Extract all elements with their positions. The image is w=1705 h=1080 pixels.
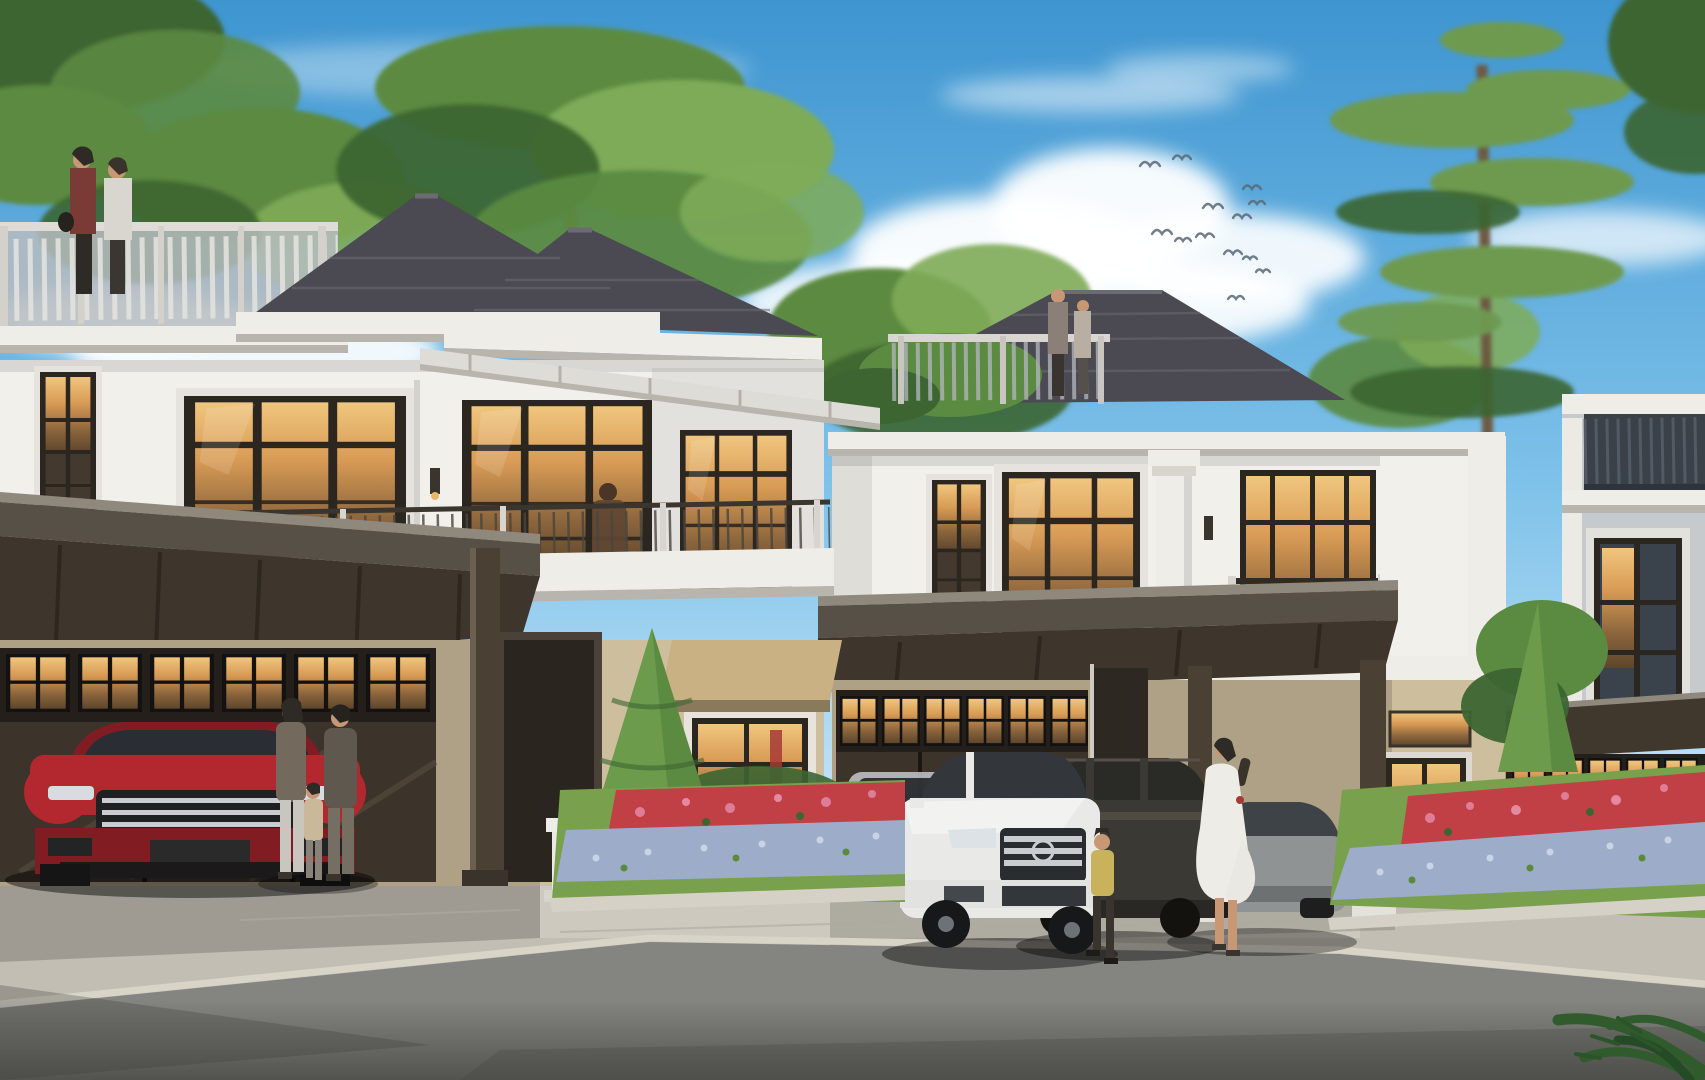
lit-transom-pane — [294, 654, 358, 712]
lit-transom-pane — [366, 654, 430, 712]
awning — [660, 640, 842, 700]
lit-transom-pane — [1008, 696, 1046, 746]
lit-transom-pane — [150, 654, 214, 712]
cornice-shadow — [1562, 505, 1705, 513]
lit-transom-pane — [222, 654, 286, 712]
townhouse-rendering — [0, 0, 1705, 1080]
adult-woman — [276, 698, 306, 879]
sconce-icon — [1204, 516, 1213, 540]
cornice — [1562, 490, 1705, 506]
porch-sign — [1390, 712, 1470, 746]
lit-transom-pane — [1050, 696, 1088, 746]
parapet-cap — [1562, 394, 1705, 414]
lit-transom-pane — [882, 696, 920, 746]
lavender-band — [556, 820, 905, 882]
rendering-canvas — [0, 0, 1705, 1080]
cornice — [828, 432, 1505, 450]
lit-transom-pane — [966, 696, 1004, 746]
sconce-icon — [430, 468, 440, 494]
lit-transom-pane — [78, 654, 142, 712]
lit-transom-pane — [6, 654, 70, 712]
roof-lattice-screen — [1584, 414, 1705, 490]
lit-transom-pane — [840, 696, 878, 746]
lit-transom-pane — [924, 696, 962, 746]
